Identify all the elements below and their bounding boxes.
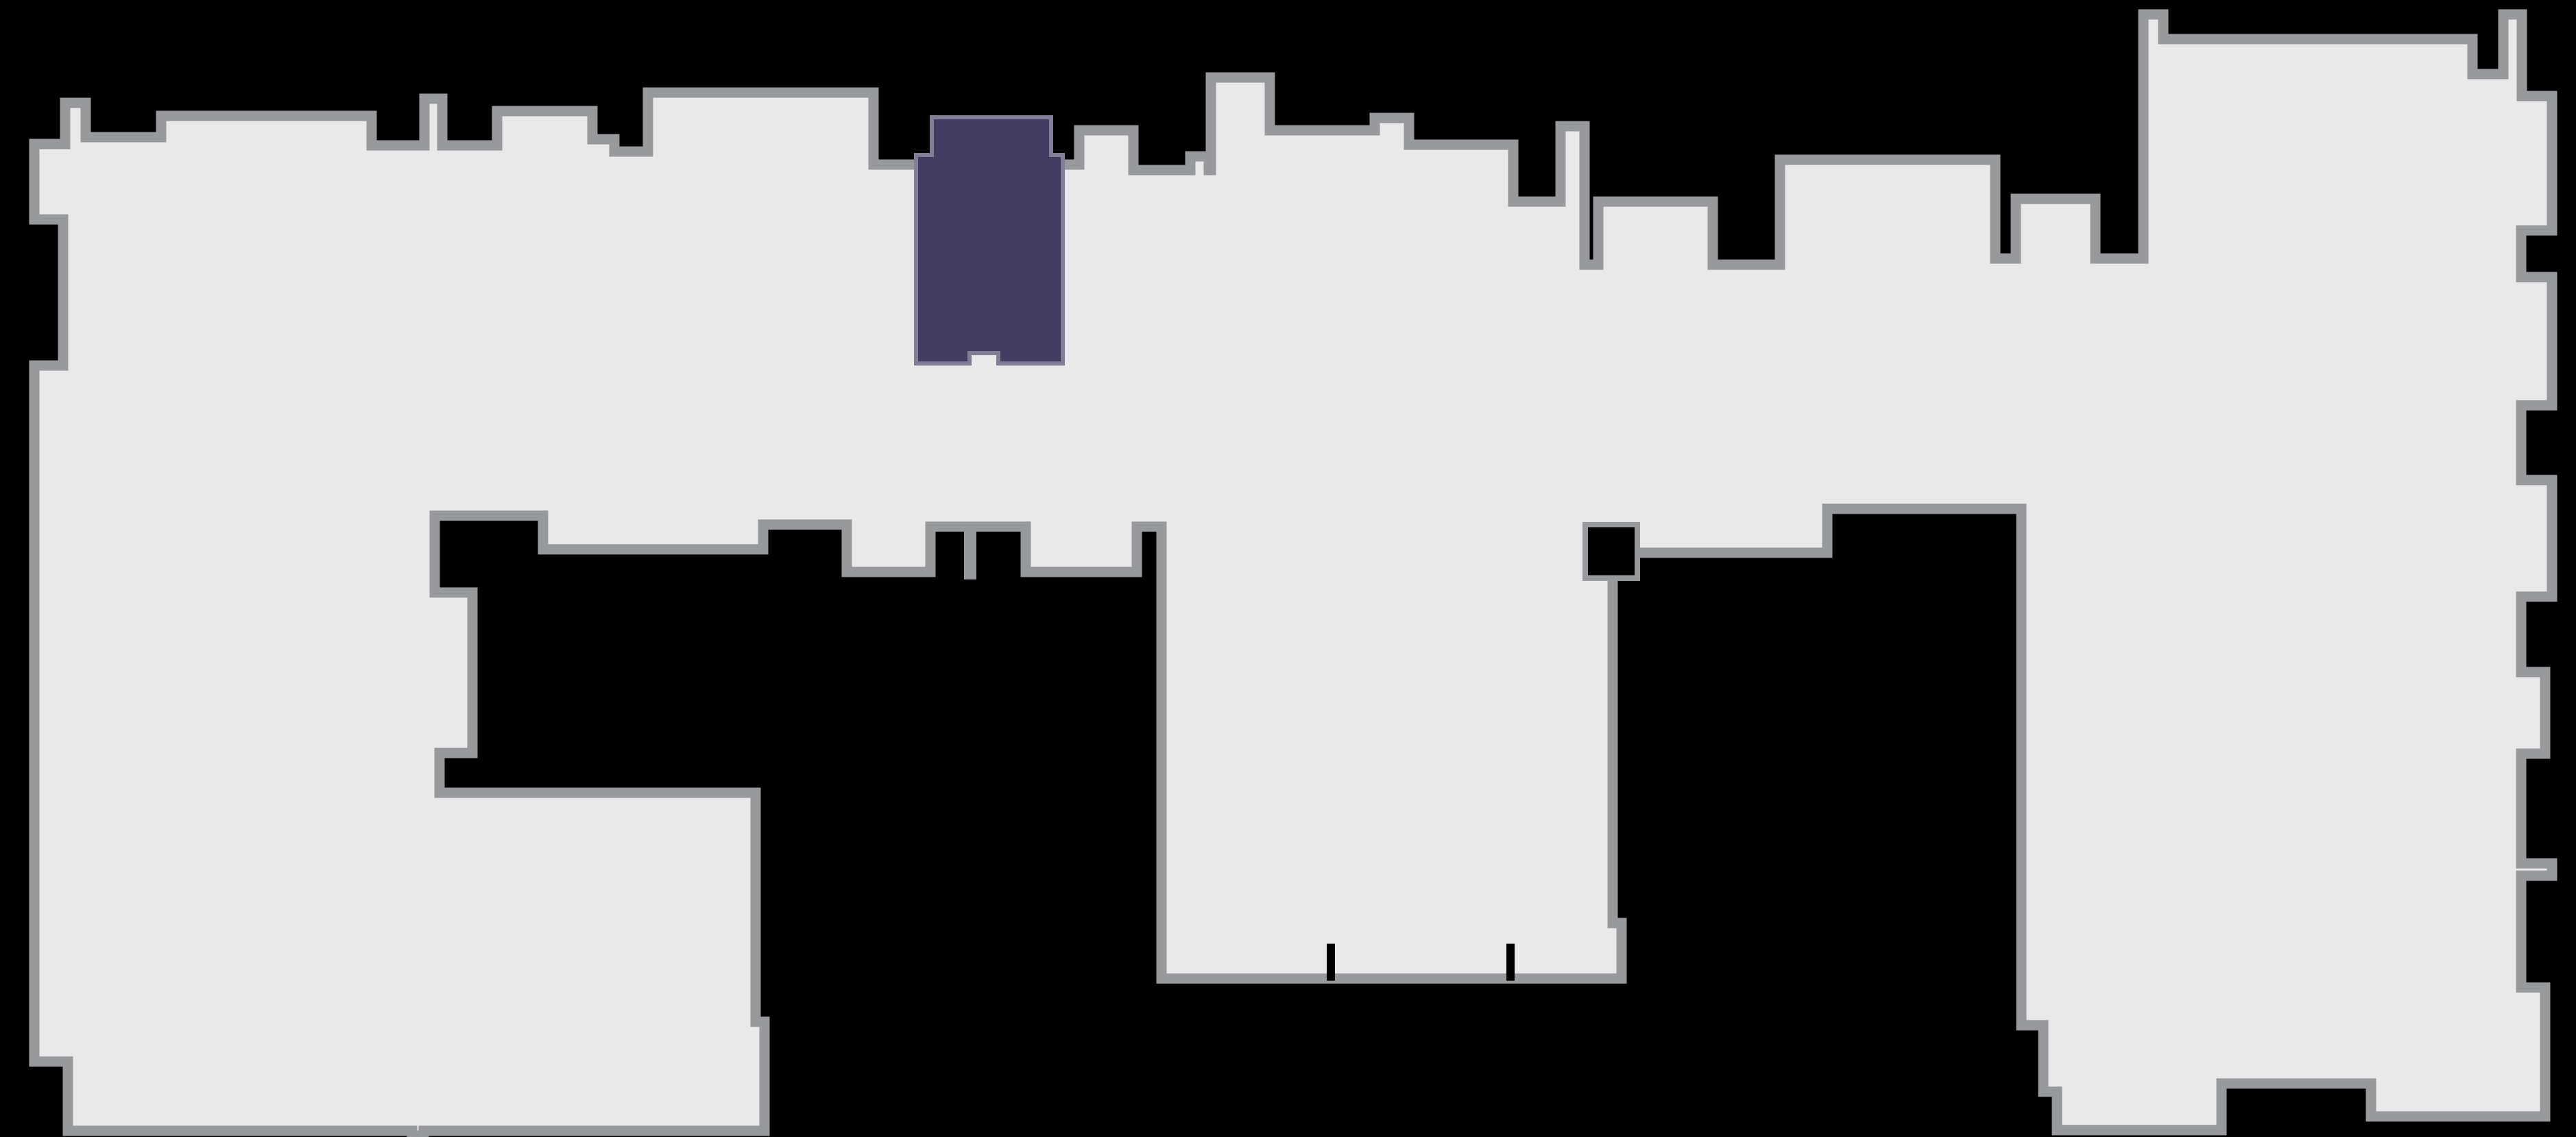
courtyard-wall-divider <box>964 528 976 579</box>
roof-pocket-notch <box>1585 525 1637 578</box>
floor-plan-canvas <box>0 0 2576 1137</box>
highlighted-room[interactable] <box>916 117 1063 363</box>
floor-plan-svg <box>0 0 2576 1137</box>
building-footprint <box>34 14 2552 1136</box>
door-slit-icon <box>1327 944 1335 981</box>
door-slit-icon <box>1506 944 1515 981</box>
